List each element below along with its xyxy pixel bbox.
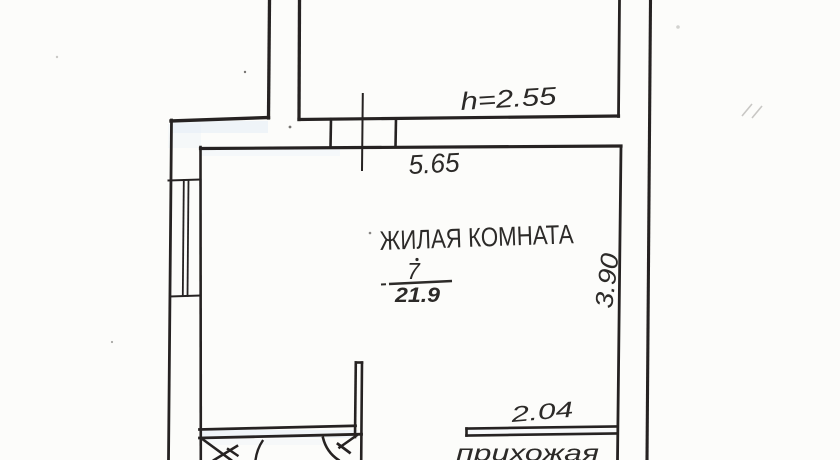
svg-text:21.9: 21.9 — [394, 284, 440, 307]
svg-text:5.65: 5.65 — [408, 147, 461, 180]
svg-text:h=2.55: h=2.55 — [460, 82, 558, 116]
svg-text:7: 7 — [407, 258, 421, 284]
svg-text:прихожая: прихожая — [456, 440, 599, 460]
